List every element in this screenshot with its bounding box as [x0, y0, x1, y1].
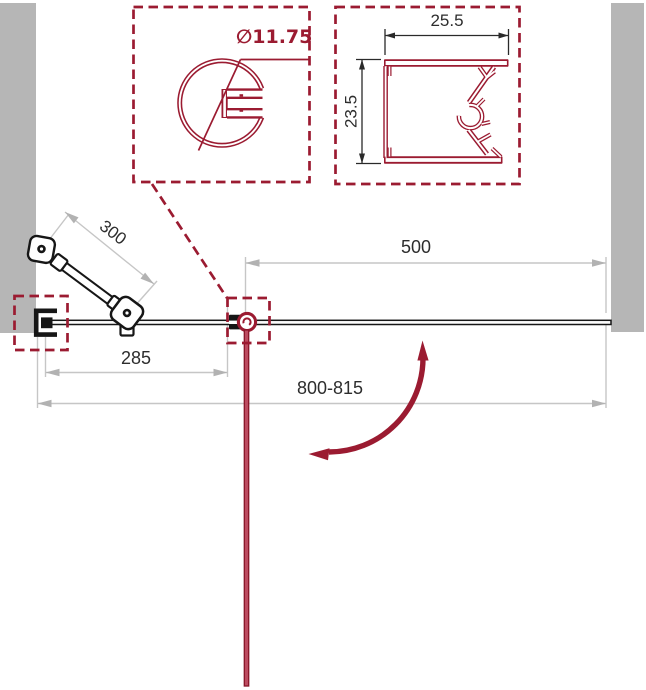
- callout-leader-line: [152, 184, 227, 298]
- profile-height-label: 23.5: [343, 87, 360, 137]
- hinge-assembly: [229, 313, 256, 330]
- diameter-label: ∅11.75: [236, 28, 320, 47]
- profile-dimension-arrowheads: [359, 33, 509, 164]
- door-swing-arrow: [309, 341, 429, 461]
- profile-dimension-lines: [356, 29, 509, 164]
- technical-drawing: ∅11.75 25.5 23.5 300 500 285 800-815: [0, 0, 646, 690]
- profile-width-label: 25.5: [421, 12, 473, 29]
- fixed-panel-width-label: 285: [106, 349, 166, 367]
- detail-callouts: [15, 7, 520, 350]
- round-tube-profile: [180, 60, 309, 151]
- door-open-position-line: [244, 330, 248, 686]
- drawing-linework: [0, 0, 646, 690]
- opening-width-label: 500: [386, 238, 446, 256]
- wall-channel-profile: [356, 29, 509, 164]
- total-width-label: 800-815: [290, 379, 370, 397]
